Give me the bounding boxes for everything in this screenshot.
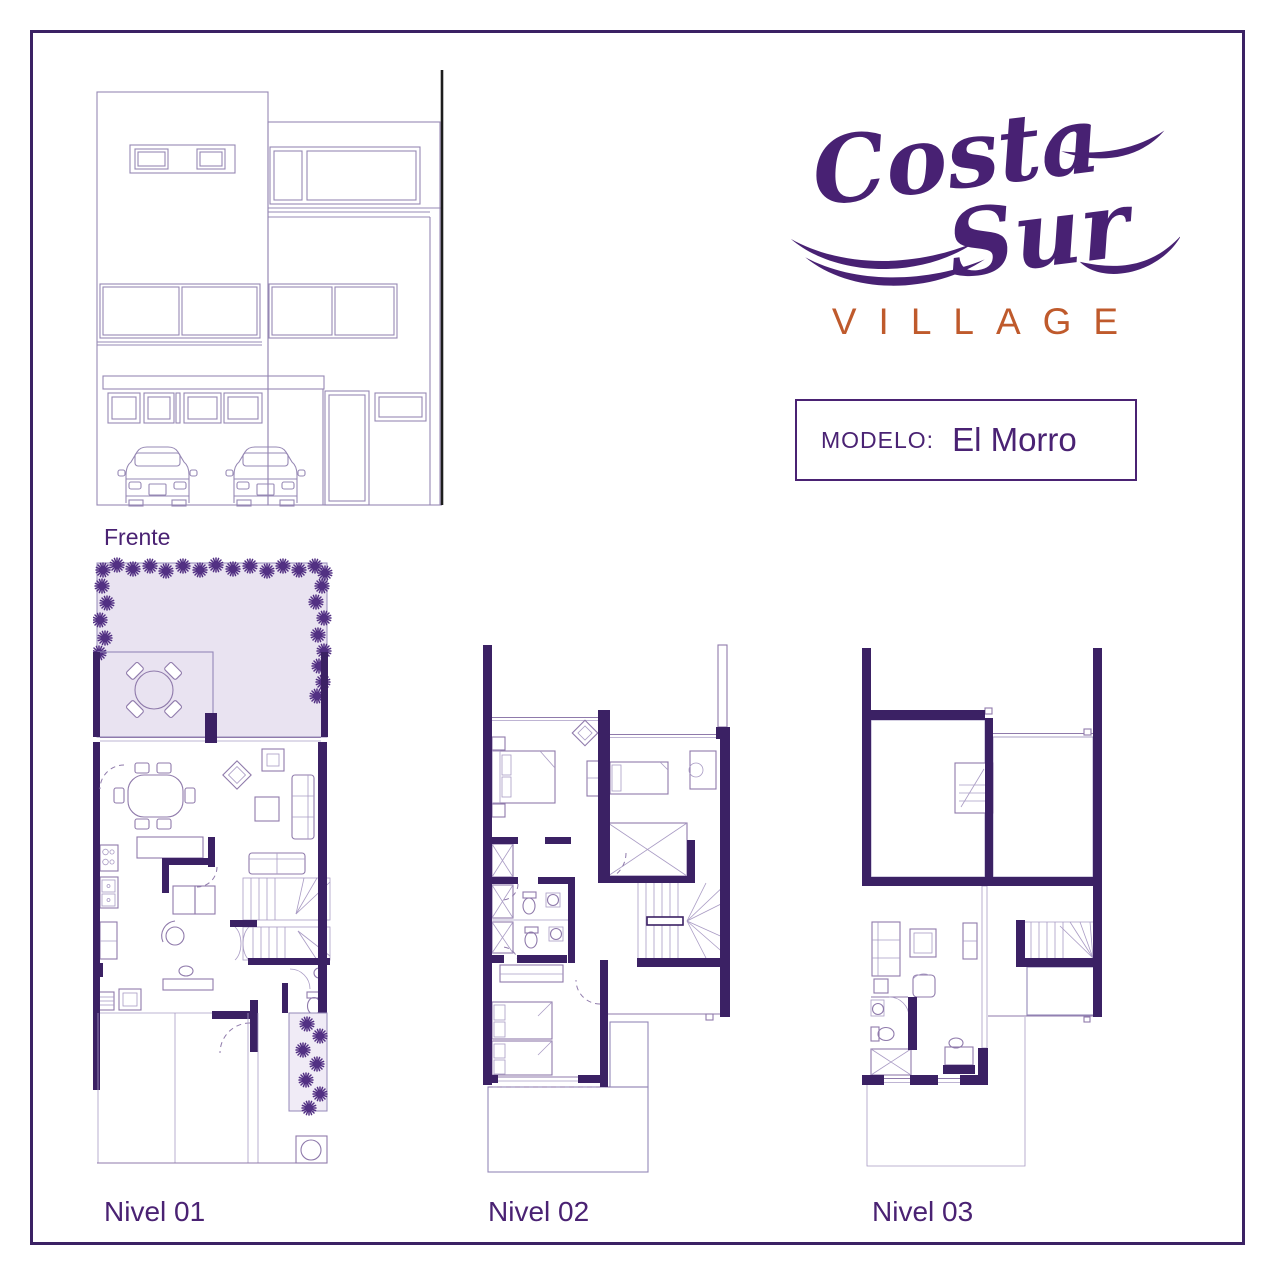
model-label: MODELO: (821, 427, 934, 454)
elevation-caption: Frente (104, 524, 170, 551)
level2-caption: Nivel 02 (488, 1196, 589, 1228)
front-elevation-drawing (85, 62, 457, 514)
stairs (235, 878, 330, 960)
bathroom (871, 997, 973, 1075)
plan-sheet: Frente Costa Sur VILLAGE MODELO: El Morr… (0, 0, 1275, 1275)
family-room (872, 886, 987, 1048)
brand-subtitle: VILLAGE (770, 301, 1180, 343)
walls (483, 645, 730, 1087)
level1-caption: Nivel 01 (104, 1196, 205, 1228)
bathrooms (492, 884, 568, 963)
model-box: MODELO: El Morro (795, 399, 1137, 481)
roof-terraces (871, 708, 1093, 877)
floor-plan-level-2 (478, 643, 750, 1189)
logo-word-sur: Sur (941, 169, 1141, 299)
model-name: El Morro (952, 421, 1077, 459)
stairs (1025, 922, 1093, 958)
stairs (598, 853, 727, 958)
elevation-building (97, 70, 442, 506)
brand-logo-script: Costa Sur (770, 78, 1180, 300)
brand-logo: Costa Sur VILLAGE (770, 78, 1180, 348)
car-left-icon (118, 447, 197, 506)
floor-plan-level-3 (856, 645, 1108, 1187)
garage (97, 1013, 327, 1163)
level3-caption: Nivel 03 (872, 1196, 973, 1228)
study (162, 867, 217, 990)
car-right-icon (226, 447, 305, 506)
bedroom3 (492, 965, 600, 1081)
lower-terrace (988, 967, 1102, 1022)
floor-plan-level-1 (93, 556, 335, 1188)
